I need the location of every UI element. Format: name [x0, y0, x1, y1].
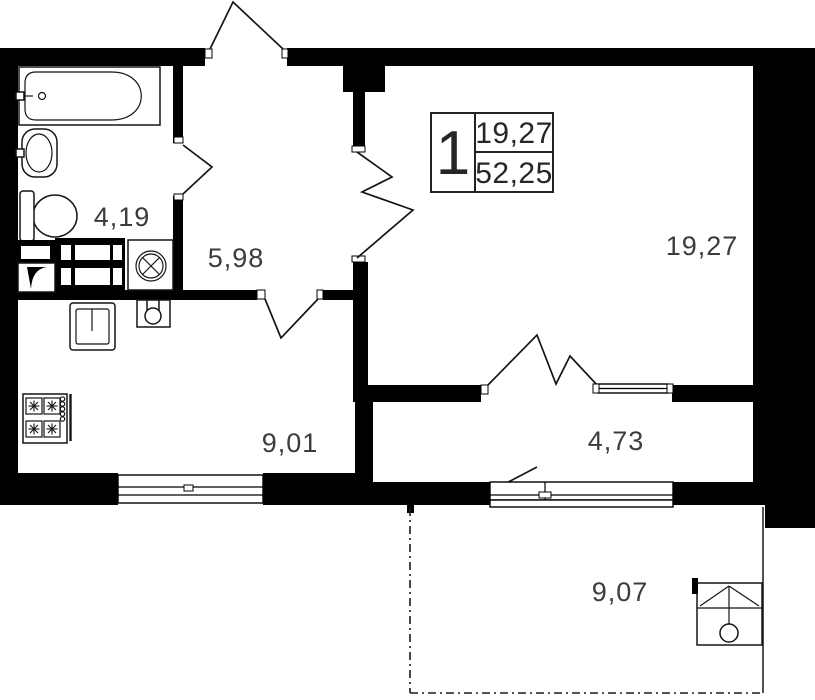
entrance-door: [210, 2, 283, 49]
unit-living-area: 19,27: [475, 117, 553, 150]
bathroom-area-label: 4,19: [94, 202, 151, 232]
room-labels: 4,19 5,98 19,27 9,01 4,73 9,07: [94, 202, 739, 607]
kitchen-door: [265, 299, 318, 338]
corridor-area-label: 4,73: [588, 426, 645, 456]
unit-info-box: 1 19,27 52,25: [431, 113, 553, 192]
vent-duct-icon: [18, 263, 55, 292]
unit-rooms-count: 1: [436, 119, 470, 188]
washing-machine-icon: [128, 240, 173, 290]
corridor-window: [593, 384, 673, 393]
kitchen-area-label: 9,01: [262, 428, 319, 458]
balcony-area-label: 9,07: [592, 577, 649, 607]
kitchen-window: [118, 475, 263, 503]
kitchen-sink-icon: [70, 303, 115, 350]
stove-icon: [23, 394, 71, 443]
floor-plan: 1 19,27 52,25 4,19 5,98 19,27 9,01 4,73 …: [0, 0, 815, 700]
floor-plan-svg: 1 19,27 52,25 4,19 5,98 19,27 9,01 4,73 …: [0, 0, 815, 700]
corridor-door: [488, 335, 598, 386]
living-room-door: [357, 152, 413, 258]
bathroom-door: [183, 145, 212, 194]
bathtub-icon: [16, 67, 160, 125]
living-room-area-label: 19,27: [666, 231, 739, 261]
balcony-door-window: [490, 482, 673, 507]
toilet-icon: [20, 191, 77, 241]
hallway-area-label: 5,98: [208, 243, 265, 273]
ac-unit-icon: [692, 578, 762, 645]
wash-basin-icon: [16, 129, 57, 177]
unit-total-area: 52,25: [475, 157, 553, 190]
water-heater-icon: [137, 300, 170, 327]
